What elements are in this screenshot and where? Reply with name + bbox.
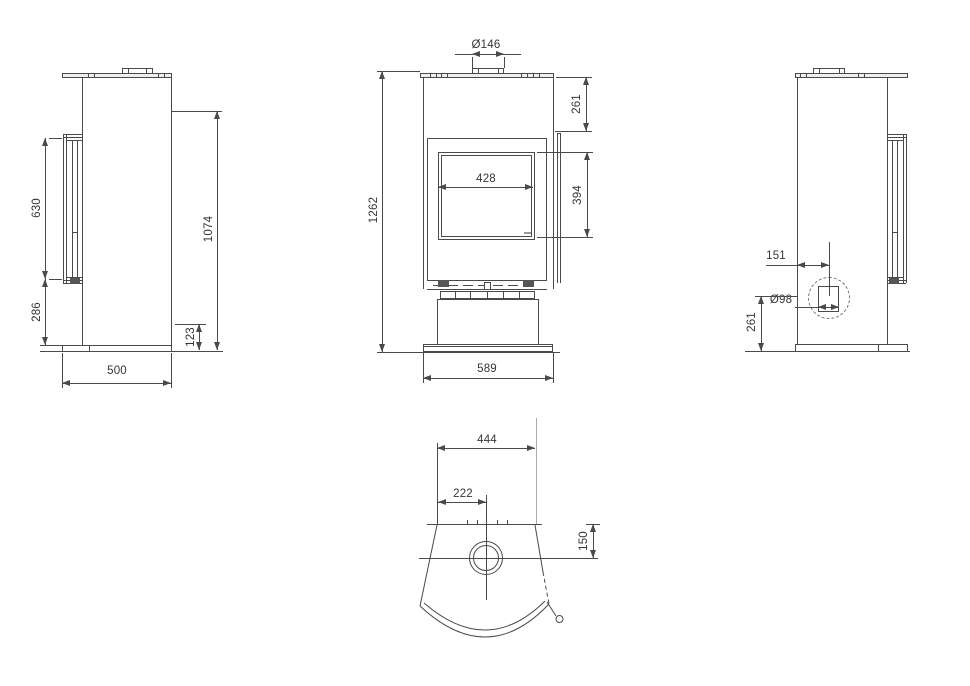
arrowhead [584,152,590,160]
flue-collar [122,68,153,74]
flue-collar [813,68,845,74]
plate-tick [533,73,534,77]
door-latch [484,282,491,290]
arrowhead [527,445,535,451]
ground-line [40,351,223,352]
door-outline [63,134,64,283]
ext-line [537,152,593,153]
lip-tick [487,292,488,298]
arrowhead [438,499,446,505]
dim-overall-width: 589 [477,363,497,375]
ext-line [472,57,473,68]
arrowhead [758,343,764,351]
door-outline [903,134,904,283]
ext-line [536,418,537,524]
pedestal-outline [538,299,539,344]
door-outline [906,134,907,283]
arrowhead [42,337,48,345]
plate-tick [858,73,859,77]
door-hinge-edge [560,133,561,283]
front-curve-outer [420,604,549,637]
arrowhead [584,229,590,237]
vent-dash [508,285,518,286]
arrowhead [438,184,446,190]
body-outline [171,77,172,345]
arrowhead [583,77,589,85]
plate-tick [521,73,522,77]
door-cap [63,134,82,135]
door-cap [888,134,906,135]
door-cap [63,137,82,138]
dim-base-width: 444 [477,434,497,446]
plate-tick [164,73,165,77]
plate-tick [441,73,442,77]
ext-line [553,353,554,383]
lip-tick [519,292,520,298]
vent-dash [493,285,503,286]
flue-collar [472,68,504,74]
ext-line [755,296,797,297]
arrowhead [818,304,826,310]
arrowhead [590,524,596,532]
base-seam [423,346,553,347]
door-outline [66,134,67,283]
top-plate [795,73,908,78]
ext-line [377,71,420,72]
door-glass-edge [77,140,78,277]
arrowhead [590,550,596,558]
door-handle-pivot [72,232,77,233]
vent-dash [463,285,473,286]
plate-tick [447,73,448,77]
arrowhead [214,111,220,119]
dim-line [437,448,535,449]
ground-line [377,352,560,353]
door-handle-knob [556,616,563,623]
arrowhead [821,262,829,268]
door-cap [66,140,82,141]
arrowhead [423,375,431,381]
door-handle-stem [547,602,556,616]
glass-logo-mark [524,232,531,234]
plate-tick [436,73,437,77]
door-hinge-cap [557,133,561,134]
dim-line [438,187,533,188]
pedestal-outline [437,299,438,344]
arrowhead [525,184,533,190]
arrowhead [437,445,445,451]
arrowhead [42,271,48,279]
ext-line [62,353,63,388]
door-hinge-edge [557,133,558,283]
door-hinge-hardware [438,280,449,287]
dim-line [45,138,46,345]
dim-line [455,54,521,55]
ext-line [40,345,62,346]
dim-glass-height: 394 [572,185,584,205]
collar-tick [146,68,147,73]
collar-tick [128,68,129,73]
dim-flue-diameter: Ø146 [472,39,501,51]
collar-tick [498,68,499,73]
ext-line [555,131,592,132]
arrowhead [472,51,480,57]
body-outline [553,77,554,289]
door-glass-edge [72,140,73,277]
collar-tick [819,68,820,73]
dim-rear-outlet-height: 1074 [203,216,215,242]
dim-line [587,152,588,237]
ext-line [49,138,62,139]
dim-intake-offset: 151 [766,250,786,262]
centerline [419,558,598,559]
door-handle-pivot [892,232,897,233]
ext-line [175,324,206,325]
body-outline [797,77,798,345]
door-cap [888,137,906,138]
dim-line [62,383,171,384]
arrowhead [379,71,385,79]
plate-tick [94,73,95,77]
centerline [829,242,830,296]
plate-tick [527,73,528,77]
body-outline [423,77,424,289]
ext-line [556,77,592,78]
left-side-edge [420,525,437,606]
dim-line [217,111,218,350]
plate-tick [88,73,89,77]
ext-line [171,111,222,112]
dim-depth: 500 [107,365,127,377]
body-outline [887,77,888,345]
dim-door-to-base: 286 [31,302,43,322]
arrowhead [42,138,48,146]
right-side-edge-hidden [543,572,549,604]
dim-intake-height: 261 [746,312,758,332]
top-view-outline [400,515,640,665]
plate-tick [539,73,540,77]
dim-flue-center-offset: 222 [453,488,473,500]
door-cap [887,140,903,141]
top-plate [62,73,172,78]
arrowhead [797,262,805,268]
lip-tick [503,292,504,298]
arrowhead [758,296,764,304]
arrowhead [496,51,504,57]
arrowhead [62,380,70,386]
plate-tick [864,73,865,77]
pedestal-top [437,299,538,300]
collar-tick [478,68,479,73]
door-glass-inner [441,155,532,237]
ext-line [171,353,172,388]
arrowhead [214,342,220,350]
door-hinge-hardware [889,278,899,284]
arrowhead [583,123,589,131]
dim-flue-from-back: 150 [578,531,590,551]
front-curve-inner [424,601,545,630]
dim-base-height: 123 [185,327,197,347]
dim-top-to-glass: 261 [571,94,583,114]
plate-tick [430,73,431,77]
dim-glass-width: 428 [476,173,496,185]
ext-line [537,237,593,238]
lip-tick [455,292,456,298]
ext-line [504,57,505,68]
arrowhead [831,304,839,310]
vent-dash [448,285,458,286]
lip-tick [470,292,471,298]
ext-line [49,279,62,280]
dim-line [423,378,553,379]
ext-line [423,353,424,383]
right-side-edge [535,525,543,572]
arrowhead [163,380,171,386]
arrowhead [379,344,385,352]
technical-drawing-canvas: 630 286 1074 123 500 [0,0,970,686]
plate-tick [158,73,159,77]
dim-door-height: 630 [31,198,43,218]
door-glass-edge [892,140,893,277]
door-hinge-hardware [523,280,534,287]
door-hinge-hardware [70,278,80,284]
ground-line [745,351,910,352]
arrowhead [478,499,486,505]
dim-line [382,71,383,352]
arrowhead [42,279,48,287]
body-outline [82,77,83,345]
plate-tick [806,73,807,77]
ext-line [437,443,438,524]
centerline [486,495,487,600]
plate-tick [800,73,801,77]
dim-overall-height: 1262 [368,197,380,223]
arrowhead [545,375,553,381]
door-glass-edge [897,140,898,277]
collar-tick [839,68,840,73]
